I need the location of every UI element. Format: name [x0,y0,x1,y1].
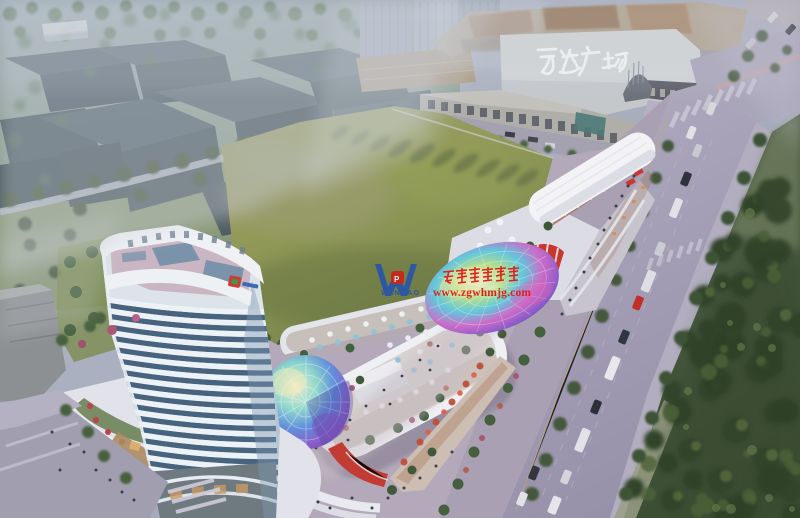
svg-text:www.zgwhmjg.com: www.zgwhmjg.com [433,287,531,299]
svg-text:P: P [394,275,400,284]
svg-text:WANHAO: WANHAO [381,290,420,297]
